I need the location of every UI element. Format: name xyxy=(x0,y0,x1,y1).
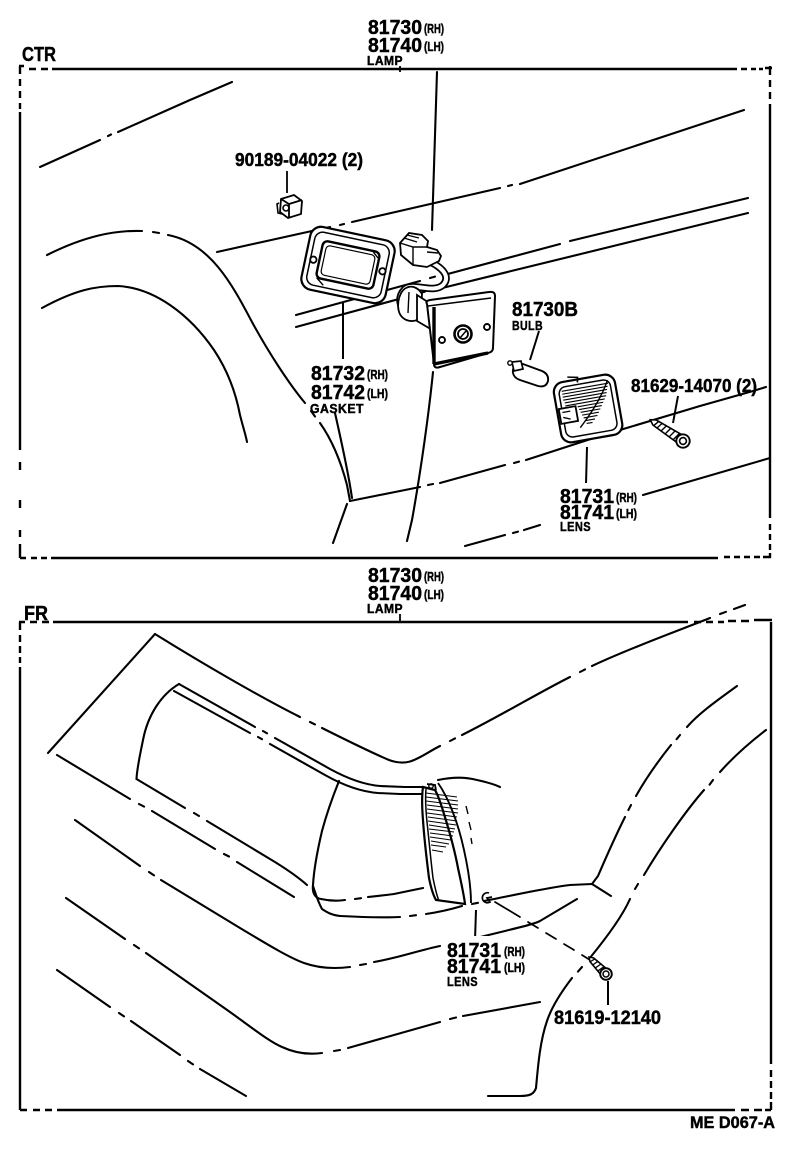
svg-text:(RH): (RH) xyxy=(367,367,388,382)
svg-text:(RH): (RH) xyxy=(424,569,444,584)
svg-text:BULB: BULB xyxy=(512,318,543,333)
svg-text:(RH): (RH) xyxy=(424,21,444,36)
svg-text:GASKET: GASKET xyxy=(310,401,364,416)
svg-text:(RH): (RH) xyxy=(616,490,637,505)
svg-text:(LH): (LH) xyxy=(504,960,525,975)
svg-text:CTR: CTR xyxy=(22,44,56,66)
svg-text:ME D067-A: ME D067-A xyxy=(690,1113,775,1132)
svg-text:LENS: LENS xyxy=(447,974,478,989)
svg-text:(LH): (LH) xyxy=(616,506,637,521)
svg-text:LENS: LENS xyxy=(560,519,591,534)
svg-text:(LH): (LH) xyxy=(424,587,444,602)
svg-text:81629-14070 (2): 81629-14070 (2) xyxy=(631,376,757,396)
svg-text:(LH): (LH) xyxy=(367,386,388,401)
svg-text:FR: FR xyxy=(24,603,48,625)
svg-text:81619-12140: 81619-12140 xyxy=(554,1008,661,1029)
svg-text:90189-04022 (2): 90189-04022 (2) xyxy=(235,150,363,170)
svg-text:LAMP: LAMP xyxy=(367,601,403,616)
svg-text:(RH): (RH) xyxy=(504,944,525,959)
svg-text:LAMP: LAMP xyxy=(367,53,403,68)
svg-text:(LH): (LH) xyxy=(424,39,444,54)
